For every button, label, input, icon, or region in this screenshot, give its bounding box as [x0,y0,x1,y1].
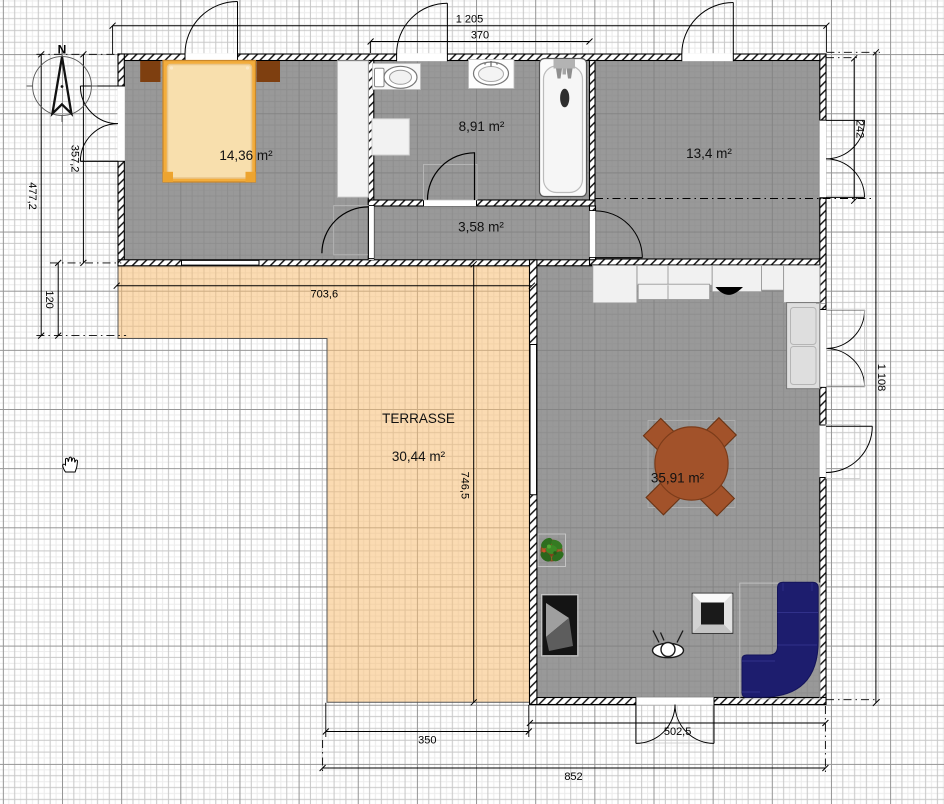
svg-text:TERRASSE: TERRASSE [382,411,455,426]
svg-text:30,44 m²: 30,44 m² [392,449,446,464]
svg-text:35,91 m²: 35,91 m² [651,471,705,486]
svg-text:1 108: 1 108 [875,364,887,392]
svg-text:746,5: 746,5 [459,472,471,500]
svg-text:703,6: 703,6 [311,289,339,301]
svg-text:350: 350 [418,735,436,747]
svg-text:8,91 m²: 8,91 m² [459,119,505,134]
svg-text:502,5: 502,5 [664,726,692,738]
svg-text:3,58 m²: 3,58 m² [458,220,504,235]
svg-text:1 205: 1 205 [456,14,484,26]
svg-text:14,36 m²: 14,36 m² [219,148,273,163]
svg-text:13,4 m²: 13,4 m² [686,146,732,161]
svg-text:242: 242 [854,120,866,138]
svg-text:852: 852 [564,771,582,783]
svg-text:477,2: 477,2 [26,182,38,210]
svg-text:357,2: 357,2 [69,145,81,173]
svg-text:120: 120 [43,290,55,308]
svg-text:N: N [58,43,67,57]
svg-text:370: 370 [471,30,489,42]
